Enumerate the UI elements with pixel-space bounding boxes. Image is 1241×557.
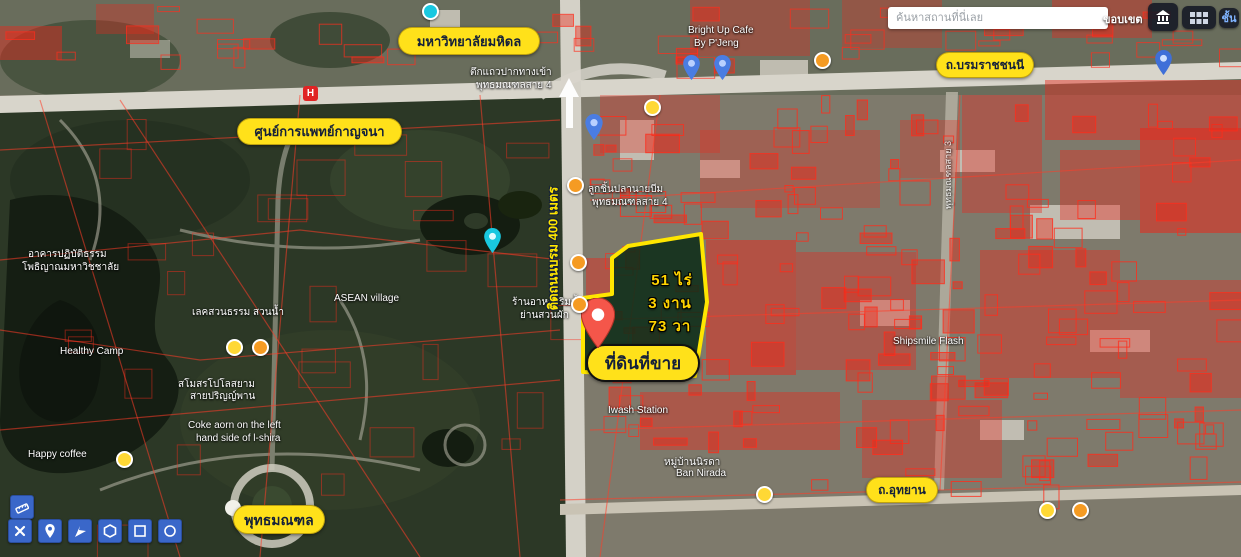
map-label-polo-club-2: สายปริญญ์พาน (190, 389, 255, 404)
poi-marker-orange-1[interactable] (567, 177, 584, 194)
poi-marker-orange-4[interactable] (814, 52, 831, 69)
map-label-wash-station: Iwash Station (608, 405, 668, 416)
map-label-bright-up-cafe-2: By P'Jeng (694, 38, 739, 49)
annotation-utthayan-road: ถ.อุทยาน (866, 477, 938, 503)
blue-pin-4[interactable] (1155, 50, 1172, 75)
blue-pin-2[interactable] (683, 55, 700, 80)
cursor-arrow-icon (74, 525, 87, 538)
poi-marker-orange-5[interactable] (252, 339, 269, 356)
poi-marker-orange-3[interactable] (571, 296, 588, 313)
annotation-phutthamonthon: พุทธมณฑล (233, 505, 325, 534)
circle-icon (163, 524, 177, 538)
marker-tool-button[interactable] (38, 519, 62, 543)
circle-tool-button[interactable] (158, 519, 182, 543)
hospital-h-marker[interactable]: H (303, 86, 318, 101)
polygon-tool-button[interactable] (98, 519, 122, 543)
rectangle-tool-button[interactable] (128, 519, 152, 543)
road-label-sai3: พุทธมณฑลสาย 3 (941, 135, 955, 215)
poi-marker-yellow-5[interactable] (1039, 502, 1056, 519)
blue-pin-1[interactable] (585, 114, 603, 140)
poi-marker-yellow-1[interactable] (644, 99, 661, 116)
map-label-shipsmile: Shipsmile Flash (893, 336, 964, 347)
property-area-rai: 51 ไร่ (651, 268, 692, 292)
annotation-mahidol-university: มหาวิทยาลัยมหิดล (398, 27, 540, 55)
pan-tool-button[interactable] (68, 519, 92, 543)
property-area-wa: 73 วา (649, 314, 692, 338)
map-label-fishball-2: พุทธมณฑลสาย 4 (592, 195, 668, 210)
annotation-borommaratchachonnani-road: ถ.บรมราชชนนี (936, 52, 1034, 78)
pin-icon (44, 524, 56, 538)
map-label-shophouse-2: พุทธมณฑลสาย 4 (476, 78, 552, 93)
map-label-nirada-2: Ban Nirada (676, 468, 726, 479)
grid-icon (1190, 12, 1208, 24)
cyan-pin[interactable] (484, 228, 501, 253)
annotation-land-for-sale: ที่ดินที่ขาย (586, 344, 700, 382)
poi-marker-yellow-3[interactable] (116, 451, 133, 468)
poi-marker-yellow-2[interactable] (226, 339, 243, 356)
boundary-toggle-label[interactable]: ขอบเขต (1103, 10, 1143, 28)
map-label-bright-up-cafe: Bright Up Cafe (688, 25, 754, 36)
property-area-ngan: 3 งาน (648, 291, 692, 315)
blue-pin-3[interactable] (714, 55, 731, 80)
measure-tool-button[interactable] (10, 495, 34, 519)
poi-marker-orange-6[interactable] (1072, 502, 1089, 519)
draw-toolbar (8, 519, 182, 543)
square-icon (133, 524, 147, 538)
annotation-road-frontage: ติดถนนบรม 400 เมตร (543, 154, 564, 344)
building-icon (1155, 9, 1171, 25)
building-layer-button[interactable] (1148, 3, 1178, 31)
map-label-healthy-camp: Healthy Camp (60, 346, 123, 357)
map-base-layer (0, 0, 1241, 557)
map-label-coke: Coke aorn on the left (188, 420, 281, 431)
grid-layer-button[interactable] (1182, 6, 1216, 29)
x-icon (14, 525, 26, 537)
hexagon-icon (103, 524, 117, 538)
annotation-kanchana-medical-center: ศูนย์การแพทย์กาญจนา (237, 118, 402, 145)
ruler-icon (15, 500, 29, 514)
map-label-happy-coffee: Happy coffee (28, 449, 87, 460)
search-input[interactable] (888, 7, 1108, 29)
map-label-coke-2: hand side of l-shira (196, 433, 281, 444)
poi-marker-teal[interactable] (422, 3, 439, 20)
map-label-asean-village: ASEAN village (334, 293, 399, 304)
map-label-lake-garden: เลคสวนธรรม สวนน้ำ (192, 305, 284, 320)
satellite-map[interactable]: อาคารปฏิบัติธรรม โพธิญาณมหาวิชชาลัย เลคส… (0, 0, 1241, 557)
layers-button[interactable]: ชั้น (1219, 8, 1239, 28)
poi-marker-orange-2[interactable] (570, 254, 587, 271)
map-label-dhamma-hall-2: โพธิญาณมหาวิชชาลัย (22, 260, 119, 275)
clear-tool-button[interactable] (8, 519, 32, 543)
poi-marker-yellow-4[interactable] (756, 486, 773, 503)
